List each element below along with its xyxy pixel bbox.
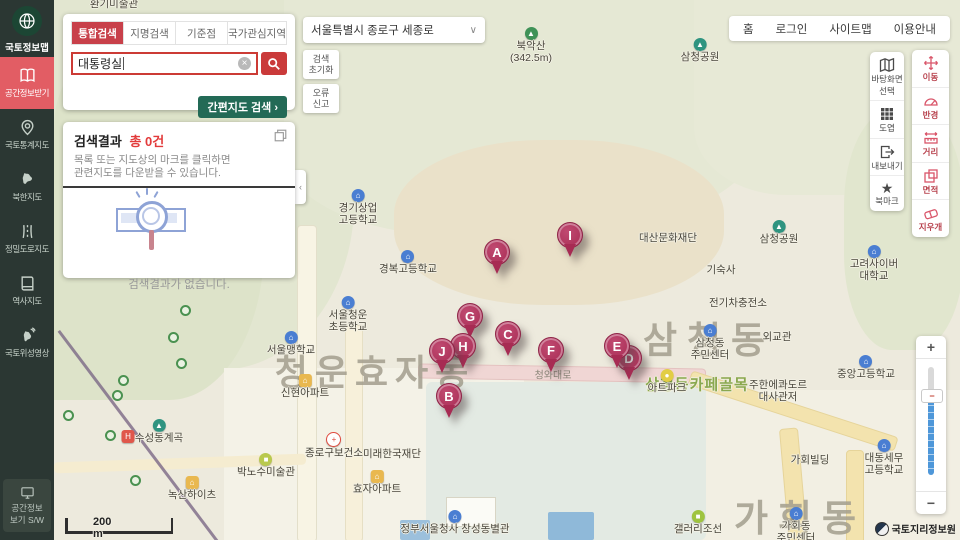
poi-label: 환기미술관 [90,0,138,11]
nk-map-icon [19,171,36,188]
eraser-icon [923,205,939,221]
health-icon: + [327,432,342,447]
poi-label: 대사관저 [749,392,807,404]
poi-label: 대학교 [850,271,898,283]
map-poi-경복고등학교[interactable]: ⌂경복고등학교 [379,250,437,276]
sidebar-item-label: 북한지도 [12,191,41,203]
sidebar-item-북한지도[interactable]: 북한지도 [0,161,54,213]
map-poi-가회빌딩[interactable]: 가회빌딩 [791,455,830,467]
poi-label: 고려사이버 [850,259,898,271]
chevron-down-icon: ∨ [470,25,477,36]
sidebar-nav: 공간정보받기국토통계지도북한지도정밀도로지도역사지도국토위성영상 [0,57,54,369]
app-title: 국토정보맵 [0,40,54,54]
top-link-홈[interactable]: 홈 [743,21,754,37]
tool-label: 선택 [879,87,895,97]
bookmark-icon: ★ [881,181,894,195]
tool-지우개[interactable]: 지우개 [912,200,949,237]
radius-icon [923,93,939,109]
poi-label: 갤러리조선 [674,524,722,536]
map-poi-박노수미술관[interactable]: ■박노수미술관 [237,453,295,479]
top-link-로그인[interactable]: 로그인 [776,21,808,37]
zoom-in-button[interactable]: + [916,336,946,358]
poi-label: 경복고등학교 [379,264,437,276]
poi-label: 녹산하이츠 [168,490,216,502]
address-dropdown[interactable]: 서울특별시 종로구 세종로 ∨ [303,17,485,43]
trail-waypoint [168,332,179,343]
clear-icon[interactable]: × [238,57,251,70]
tool-면적[interactable]: 면적 [912,163,949,201]
tab-지명검색[interactable]: 지명검색 [124,22,176,44]
software-icon [3,485,51,500]
sidebar-item-label: 국토통계지도 [5,139,49,151]
map-poi-기숙사[interactable]: 기숙사 [707,265,736,277]
govt-icon: ⌂ [703,324,716,337]
school-icon: ⌂ [877,439,890,452]
road-map-icon [19,223,36,240]
poi-label: 주한에콰도르 [749,380,807,392]
tool-label: 내보내기 [871,162,902,172]
tool-내보내기[interactable]: 내보내기 [870,139,904,177]
sidebar: 국토정보맵 공간정보받기국토통계지도북한지도정밀도로지도역사지도국토위성영상 공… [0,0,54,540]
sidebar-item-정밀도로지도[interactable]: 정밀도로지도 [0,213,54,265]
top-navigation: 홈로그인사이트맵이용안내 [729,16,950,41]
trail-waypoint [112,390,123,401]
search-input[interactable]: 대통령실 × [71,52,258,75]
map-poi-미래한국재단[interactable]: 미래한국재단 [363,449,421,461]
map-poi-hospital[interactable]: H [122,430,135,444]
map-poi-수성동계곡[interactable]: ▲수성동계곡 [135,419,183,445]
app-logo[interactable]: 국토정보맵 [0,0,54,54]
map-poi-환기미술관[interactable]: 환기미술관 [90,0,138,11]
search-query: 대통령실 [78,55,122,72]
poi-label: 중앙고등학교 [837,369,895,381]
map-poi-효자아파트[interactable]: ⌂효자아파트 [353,470,401,496]
arrow-right-icon: › [274,102,278,114]
tab-통합검색[interactable]: 통합검색 [72,22,124,44]
mountain-icon: ▲ [524,27,537,40]
gallery-icon: ■ [692,510,705,523]
top-link-이용안내[interactable]: 이용안내 [894,21,936,37]
tool-label: 반경 [923,111,939,121]
text-caret [123,57,124,70]
search-button[interactable] [261,52,287,75]
poi-label: 고등학교 [865,465,904,477]
poi-label: 삼청동 [691,338,730,350]
map-poi-서울맹학교[interactable]: ⌂서울맹학교 [267,331,315,357]
results-title: 검색결과 [74,134,122,149]
trail-waypoint [130,475,141,486]
app-window: 청운효자동삼청동가회동 삼청동카페골목 청와대로 환기미술관▲북악산(342.5… [0,0,960,540]
map-marker-E[interactable]: E [604,333,630,371]
marker-tail [545,359,557,372]
map-poi-삼청공원[interactable]: ▲삼청공원 [681,38,720,64]
map-poi-정부서울청사 창성동별관[interactable]: ⌂정부서울청사 창성동별관 [400,510,509,536]
map-poi-종로구보건소[interactable]: +종로구보건소 [305,432,363,460]
map-marker-C[interactable]: C [495,321,521,359]
sidebar-bottom-label2: 보기 S/W [3,514,51,526]
marker-tail [564,244,576,257]
attraction-icon: ● [660,369,673,382]
eraser-icon [923,205,939,221]
poi-label: 서울청운 [329,310,368,322]
sidebar-item-국토통계지도[interactable]: 국토통계지도 [0,109,54,161]
poi-label: 삼청공원 [760,234,799,246]
map-poi-서울청운[interactable]: ⌂서울청운초등학교 [329,296,368,333]
marker-tail [457,355,469,368]
poi-label: 신현아파트 [281,388,329,400]
sidebar-bottom-label: 공간정보 [3,502,51,514]
poi-label: 효자아파트 [353,484,401,496]
map-poi-녹산하이츠[interactable]: ⌂녹산하이츠 [168,476,216,502]
panel-collapse-handle[interactable]: ‹ [295,170,306,204]
ngii-logo-icon [875,522,889,536]
move-icon [923,55,939,71]
distance-icon [923,130,939,146]
tool-바탕화면선택[interactable]: 바탕화면선택 [870,52,904,101]
poi-label: 가회동 [777,521,816,533]
map-poi-삼청동[interactable]: ⌂삼청동주민센터 [691,324,730,361]
history-map-icon [19,275,36,292]
poi-label: 종로구보건소 [305,448,363,460]
poi-label: 서울맹학교 [267,345,315,357]
poi-label: 미래한국재단 [363,449,421,461]
school-icon: ⌂ [868,245,881,258]
tool-거리[interactable]: 거리 [912,125,949,163]
trail-waypoint [180,305,191,316]
tool-label: 이동 [923,73,939,83]
govt-icon: ⌂ [789,507,802,520]
move-icon [923,55,939,71]
poi-label: 경기상업 [339,203,378,215]
map-marker-A[interactable]: A [484,239,510,277]
sidebar-item-spatial-sw[interactable]: 공간정보 보기 S/W [3,479,51,532]
road-map-icon [19,223,36,240]
tool-label: 북마크 [875,197,898,207]
search-panel: 통합검색지명검색기준점국가관심지역 대통령실 × 간편지도 검색 › [63,14,295,110]
satellite-icon [19,327,36,344]
poi-label: 주민센터 [691,350,730,362]
map-poi-전기차충전소[interactable]: 전기차충전소 [709,298,767,310]
poi-label: 정부서울청사 창성동별관 [400,524,509,536]
sidebar-item-역사지도[interactable]: 역사지도 [0,265,54,317]
distance-icon [923,130,939,146]
apartment-icon: ⌂ [371,470,384,483]
poi-label: 대동세무 [865,453,904,465]
school-icon: ⌂ [351,189,364,202]
results-count: 총 0건 [129,134,164,149]
history-map-icon [19,275,36,292]
sidebar-item-공간정보받기[interactable]: 공간정보받기 [0,57,54,109]
tool-label: 면적 [923,186,939,196]
park-icon: ▲ [693,38,706,51]
map-poi-갤러리조선[interactable]: ■갤러리조선 [674,510,722,536]
poi-label: 전기차충전소 [709,298,767,310]
poi-label: (342.5m) [510,53,552,65]
marker-tail [436,360,448,373]
tab-기준점[interactable]: 기준점 [176,22,228,44]
trail-waypoint [63,410,74,421]
scale-label: 200 m [93,516,111,540]
pond-large [548,512,594,540]
sidebar-item-label: 정밀도로지도 [5,243,49,255]
tool-label: 바탕화면 [871,75,902,85]
park-icon: ▲ [153,419,166,432]
museum-icon: ■ [260,453,273,466]
school-icon: ⌂ [402,250,415,263]
download-map-icon [19,67,36,84]
marker-tail [502,343,514,356]
map-marker-B[interactable]: B [436,383,462,421]
school-icon: ⌂ [285,331,298,344]
zoom-slider-handle[interactable]: − [921,389,943,403]
map-attribution: 국토지리정보원 [875,521,956,536]
results-header: 검색결과 총 0건 [63,122,295,150]
sidebar-item-label: 국토위성영상 [5,347,49,359]
tab-국가관심지역[interactable]: 국가관심지역 [228,22,286,44]
map-poi-대산문화재단[interactable]: 대산문화재단 [639,233,697,245]
poi-label: 주민센터 [777,533,816,540]
area-icon [923,168,939,184]
quick-map-search-button[interactable]: 간편지도 검색 › [198,96,287,118]
map-poi-외교관[interactable]: 외교관 [763,332,792,344]
tool-label: 도엽 [879,124,895,134]
download-map-icon [19,67,36,84]
radius-icon [923,93,939,109]
poi-label: 고등학교 [339,215,378,227]
trail-waypoint [176,358,187,369]
expand-window-icon[interactable] [274,129,287,142]
tool-이동[interactable]: 이동 [912,50,949,88]
govt-icon: ⌂ [449,510,462,523]
map-marker-J[interactable]: J [429,338,455,376]
map-poi-아트파크[interactable]: ●아트파크 [648,369,687,395]
magnifier-icon [267,57,281,71]
zoom-control: + − − [916,336,946,514]
apartment-icon: ⌂ [186,476,199,489]
stats-map-icon [19,119,36,136]
map-poi-중앙고등학교[interactable]: ⌂중앙고등학교 [837,355,895,381]
results-description: 목록 또는 지도상의 마크를 클릭하면 관련지도를 다운받을 수 있습니다. [63,150,295,180]
sheet-grid-icon [879,106,895,122]
export-icon [879,144,895,160]
search-results-panel: 검색결과 총 0건 목록 또는 지도상의 마크를 클릭하면 관련지도를 다운받을… [63,122,295,278]
zoom-out-button[interactable]: − [916,492,946,514]
export-icon [879,144,895,160]
poi-label: 아트파크 [648,383,687,395]
sidebar-item-label: 공간정보받기 [5,87,49,99]
empty-results-illustration [63,188,295,276]
map-marker-I[interactable]: I [557,222,583,260]
satellite-icon [19,327,36,344]
stats-map-icon [19,119,36,136]
hospital-icon: H [122,430,135,443]
tool-label: 거리 [923,148,939,158]
park-icon: ▲ [772,220,785,233]
trail-waypoint [105,430,116,441]
poi-label: 외교관 [763,332,792,344]
nk-map-icon [19,171,36,188]
apartment-icon: ⌂ [299,374,312,387]
poi-label: 기숙사 [707,265,736,277]
attribution-text: 국토지리정보원 [892,521,956,536]
top-link-사이트맵[interactable]: 사이트맵 [829,21,871,37]
basemap-icon [879,57,895,73]
current-address: 서울특별시 종로구 세종로 [311,22,470,38]
search-reset-button[interactable]: 검색 초기화 [303,50,339,79]
poi-label: 초등학교 [329,322,368,334]
map-toolbar-primary: 바탕화면선택도엽내보내기★북마크 [870,52,904,211]
school-icon: ⌂ [341,296,354,309]
tool-label: 지우개 [919,223,942,233]
poi-label: 수성동계곡 [135,433,183,445]
poi-label: 가회빌딩 [791,455,830,467]
sheet-grid-icon [879,106,895,122]
map-poi-대동세무[interactable]: ⌂대동세무고등학교 [865,439,904,476]
tool-반경[interactable]: 반경 [912,88,949,126]
map-poi-경기상업[interactable]: ⌂경기상업고등학교 [339,189,378,226]
sidebar-item-국토위성영상[interactable]: 국토위성영상 [0,317,54,369]
poi-label: 북악산 [510,41,552,53]
map-poi-신현아파트[interactable]: ⌂신현아파트 [281,374,329,400]
trail-waypoint [118,375,129,386]
marker-tail [443,405,455,418]
school-icon: ⌂ [860,355,873,368]
marker-tail [611,355,623,368]
area-icon [923,168,939,184]
tool-북마크[interactable]: ★북마크 [870,176,904,211]
empty-results-text: 검색결과가 없습니다. [63,276,295,292]
sidebar-item-label: 역사지도 [12,295,41,307]
poi-label: 박노수미술관 [237,467,295,479]
map-marker-F[interactable]: F [538,337,564,375]
map-poi-가회동[interactable]: ⌂가회동주민센터 [777,507,816,540]
error-report-button[interactable]: 오류 신고 [303,84,339,113]
map-poi-북악산[interactable]: ▲북악산(342.5m) [510,27,552,64]
basemap-icon [879,57,895,73]
globe-icon [12,6,42,36]
poi-label: 대산문화재단 [639,233,697,245]
map-toolbar-measure: 이동반경거리면적지우개 [912,50,949,237]
zoom-track-lower [928,399,934,475]
search-tabs: 통합검색지명검색기준점국가관심지역 [71,21,287,45]
map-poi-주한에콰도르[interactable]: 주한에콰도르대사관저 [749,380,807,403]
tool-도엽[interactable]: 도엽 [870,101,904,139]
map-poi-고려사이버[interactable]: ⌂고려사이버대학교 [850,245,898,282]
marker-tail [491,261,503,274]
zoom-slider[interactable]: − [916,359,946,491]
map-poi-삼청공원[interactable]: ▲삼청공원 [760,220,799,246]
poi-label: 삼청공원 [681,52,720,64]
